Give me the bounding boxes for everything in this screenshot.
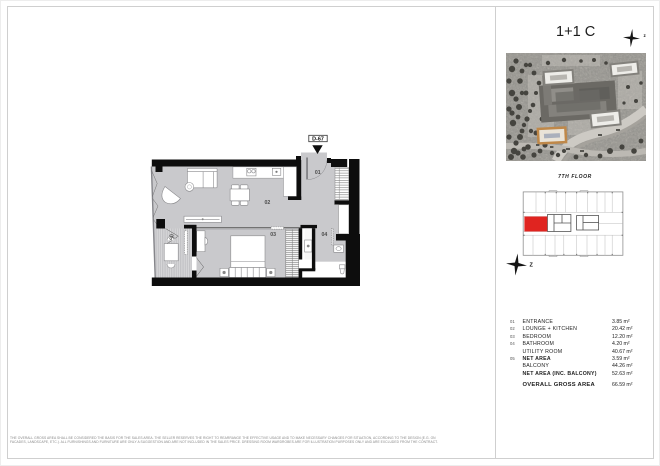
svg-text:04: 04 — [322, 232, 328, 238]
svg-text:05: 05 — [167, 234, 173, 240]
svg-text:02: 02 — [265, 200, 271, 206]
svg-text:z: z — [644, 33, 647, 38]
svg-text:01: 01 — [315, 170, 321, 176]
svg-text:D-67: D-67 — [312, 137, 324, 143]
svg-text:Z: Z — [530, 263, 534, 269]
svg-text:03: 03 — [270, 232, 276, 238]
